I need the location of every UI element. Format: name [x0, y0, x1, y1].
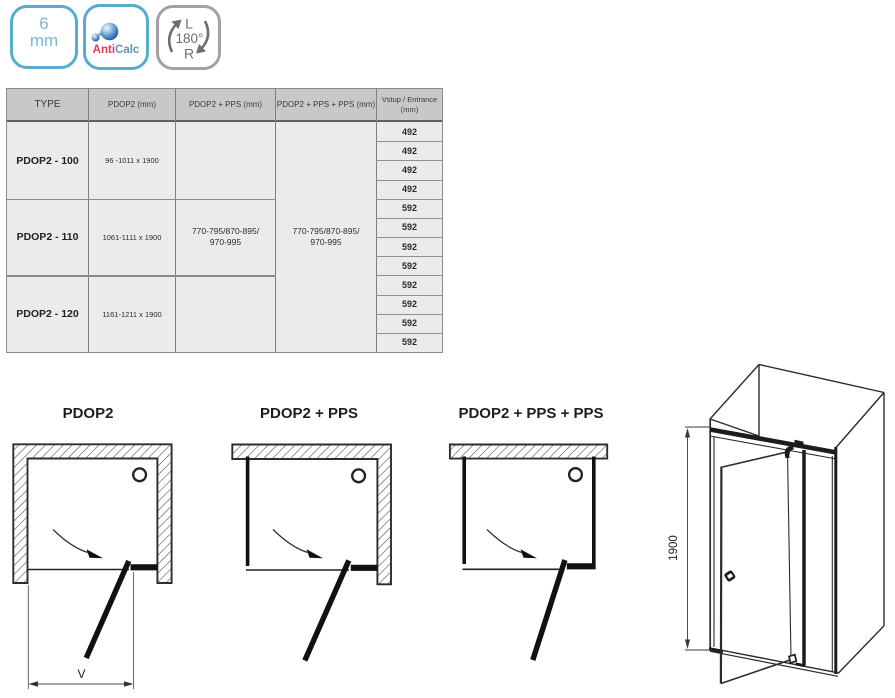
svg-text:1900: 1900	[668, 535, 680, 561]
svg-text:V: V	[77, 667, 85, 681]
